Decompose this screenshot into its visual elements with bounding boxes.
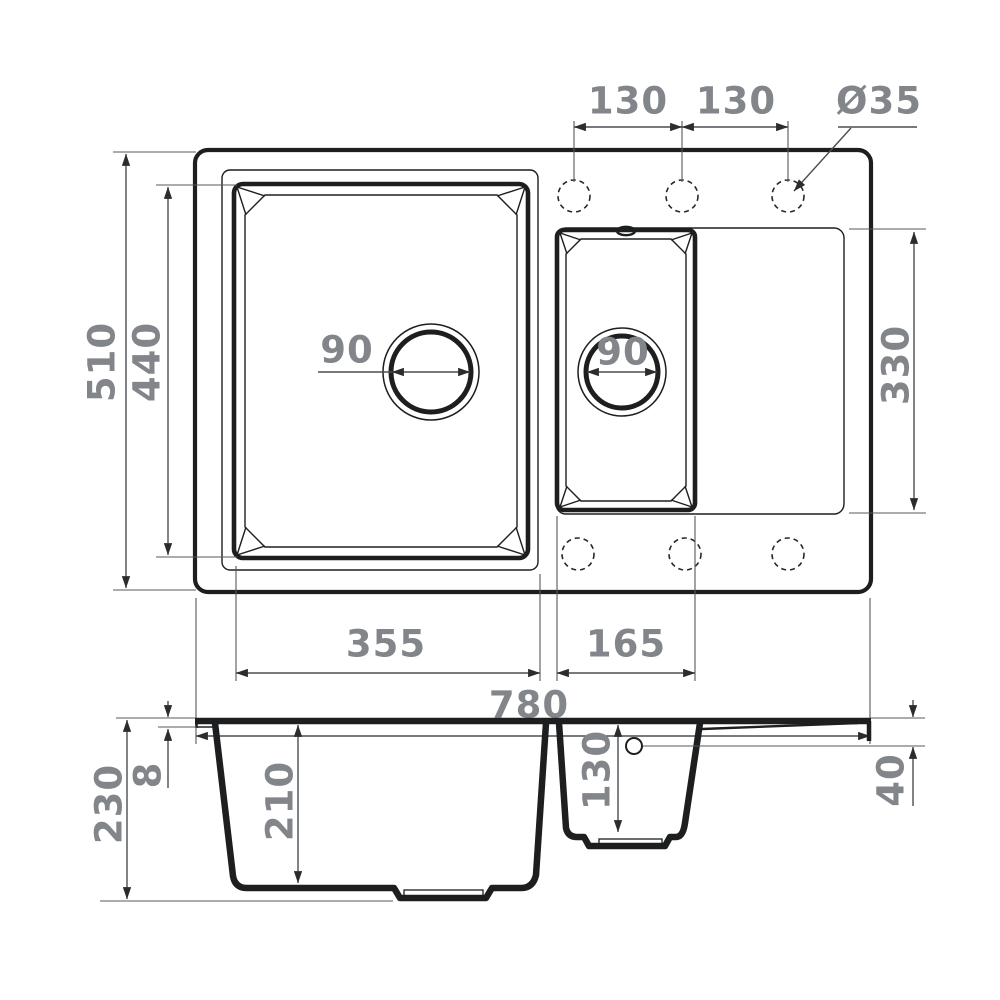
section-view: 230 8 210 130 40: [88, 700, 926, 901]
small-drain-label: 90: [596, 331, 650, 374]
main-bowl-recess-rim: [222, 170, 538, 570]
tap-hole-top-2: [666, 180, 698, 212]
main-bowl-outline: [234, 184, 528, 558]
sink-outline-top-view: [195, 150, 871, 592]
hole-spacing-right-label: 130: [696, 80, 776, 123]
tap-hole-top-1: [558, 180, 590, 212]
drainboard-drop-label: 40: [870, 753, 913, 807]
small-bowl-width-label: 165: [586, 623, 666, 666]
small-bowl-depth-label: 130: [576, 730, 619, 810]
section-overflow-hole: [626, 738, 642, 754]
sink-technical-drawing: 130 130 Ø35 510 440 330 90 90 355 165: [0, 0, 1000, 1000]
rim-thickness-label: 8: [127, 762, 170, 789]
main-bowl-corner-chamfers: [237, 187, 525, 555]
bowl-width-label: 355: [346, 623, 426, 666]
hole-diameter-leader: [794, 128, 851, 191]
top-view: 130 130 Ø35 510 440 330 90 90 355 165: [81, 80, 927, 745]
drainboard-depth-label: 330: [875, 325, 918, 405]
tap-hole-bottom-2: [669, 538, 701, 570]
hole-diameter-label: Ø35: [836, 80, 922, 123]
main-bowl-inner-rim: [245, 195, 517, 547]
height-230-extension-lines: [100, 718, 393, 901]
tap-hole-bottom-1: [562, 538, 594, 570]
main-bowl-depth-label: 210: [259, 761, 302, 841]
drawing-canvas: 130 130 Ø35 510 440 330 90 90 355 165: [0, 0, 1000, 1000]
hole-spacing-left-label: 130: [588, 80, 668, 123]
bowl-length-label: 440: [126, 322, 169, 402]
height-230-label: 230: [88, 764, 131, 844]
depth-510-label: 510: [81, 322, 124, 402]
tap-hole-bottom-3: [772, 538, 804, 570]
main-drain-label: 90: [320, 329, 374, 372]
